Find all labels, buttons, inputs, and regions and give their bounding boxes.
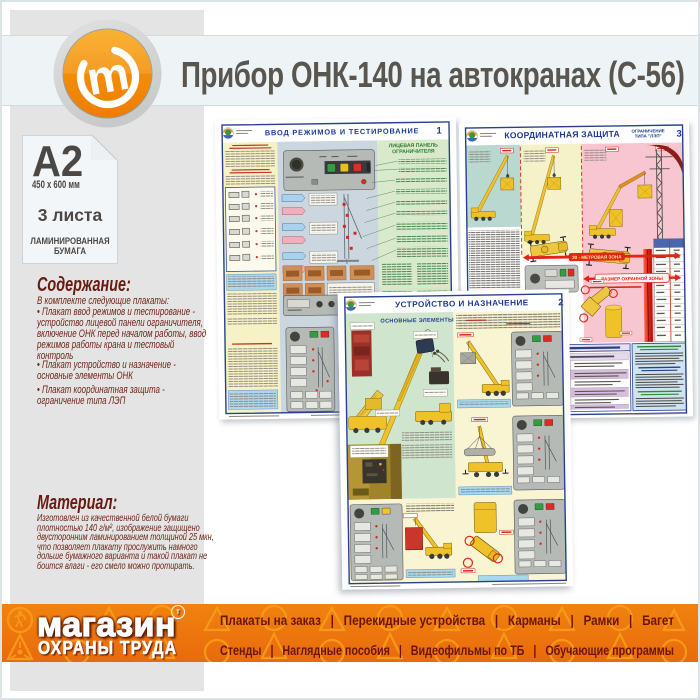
svg-text:ОГРАНИЧИТЕЛЯ: ОГРАНИЧИТЕЛЯ xyxy=(392,149,435,156)
svg-text:2: 2 xyxy=(558,297,563,308)
svg-text:30 - МЕТРОВАЯ ЗОНА: 30 - МЕТРОВАЯ ЗОНА xyxy=(572,254,622,260)
svg-text:ТИПА "ЛЭП": ТИПА "ЛЭП" xyxy=(635,133,662,138)
svg-text:1: 1 xyxy=(436,126,442,137)
svg-text:ОСНОВНЫЕ ЭЛЕМЕНТЫ: ОСНОВНЫЕ ЭЛЕМЕНТЫ xyxy=(380,318,454,325)
svg-text:КООРДИНАТНАЯ ЗАЩИТА: КООРДИНАТНАЯ ЗАЩИТА xyxy=(504,129,620,141)
svg-text:3: 3 xyxy=(676,129,681,140)
